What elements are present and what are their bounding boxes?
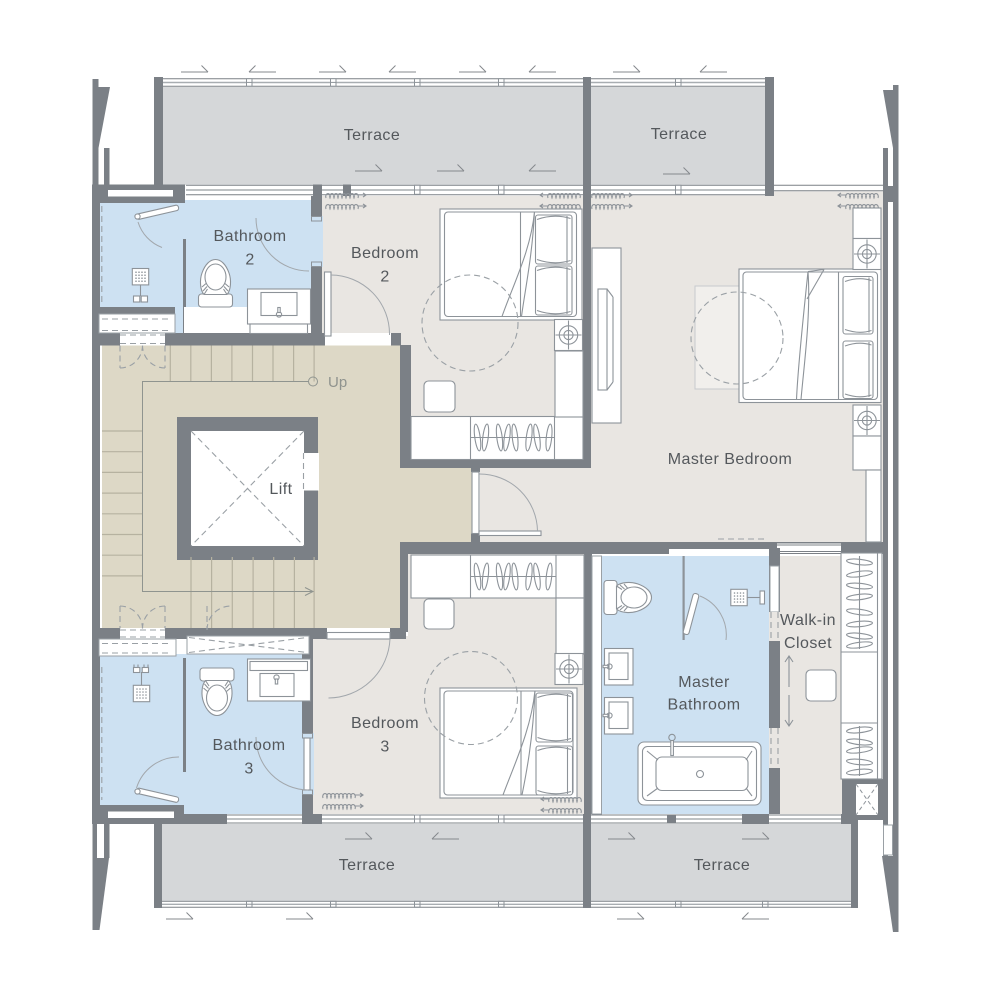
svg-text:2: 2 <box>380 269 389 286</box>
svg-text:Bathroom: Bathroom <box>214 228 287 245</box>
svg-text:Terrace: Terrace <box>694 857 751 874</box>
svg-text:Terrace: Terrace <box>339 857 396 874</box>
svg-text:Up: Up <box>328 374 347 391</box>
svg-text:Bedroom: Bedroom <box>351 245 419 262</box>
svg-text:Walk-in: Walk-in <box>780 612 836 629</box>
svg-text:Closet: Closet <box>784 635 832 652</box>
svg-text:Bathroom: Bathroom <box>668 697 741 714</box>
svg-text:Master: Master <box>678 674 730 691</box>
svg-text:2: 2 <box>245 252 254 269</box>
svg-text:3: 3 <box>244 761 253 778</box>
svg-text:Terrace: Terrace <box>344 127 401 144</box>
svg-text:Terrace: Terrace <box>651 126 708 143</box>
svg-text:Lift: Lift <box>269 481 292 498</box>
svg-text:Bathroom: Bathroom <box>213 737 286 754</box>
svg-text:3: 3 <box>380 739 389 756</box>
svg-text:Master Bedroom: Master Bedroom <box>668 451 793 468</box>
svg-text:Bedroom: Bedroom <box>351 715 419 732</box>
